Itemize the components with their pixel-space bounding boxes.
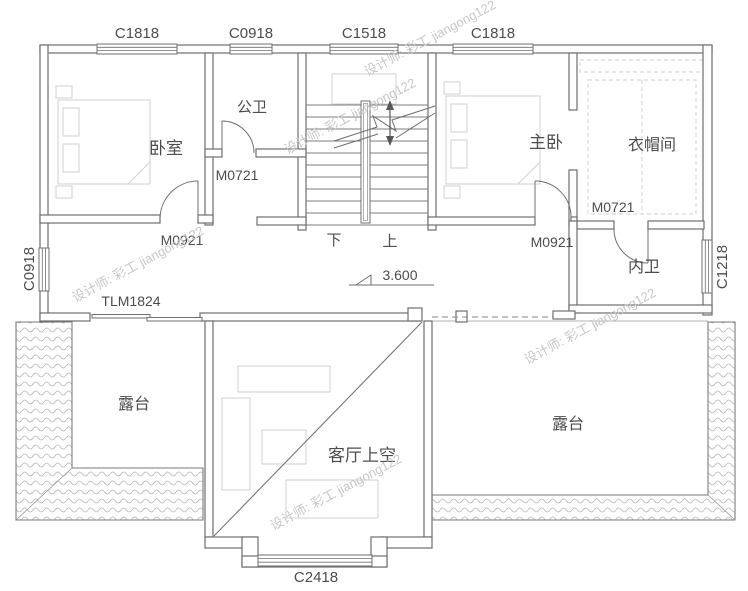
wall-segment xyxy=(569,53,577,110)
window-c0918-top xyxy=(230,44,272,54)
floor-plan-page: C1818 C0918 C1518 C1818 C0918 C1218 C241… xyxy=(0,0,748,591)
wall-segment xyxy=(380,537,432,548)
window-label-c2418: C2418 xyxy=(294,569,338,586)
door-label-tlm1824: TLM1824 xyxy=(101,293,160,309)
room-label-master-bedroom: 主卧 xyxy=(529,133,563,152)
room-label-bedroom: 卧室 xyxy=(149,139,183,158)
stair-railing xyxy=(361,101,370,223)
window-label-c0918-top: C0918 xyxy=(229,25,273,42)
window-c1818-top-right xyxy=(453,44,533,54)
wall-pier xyxy=(408,308,422,321)
room-label-ensuite-bath: 内卫 xyxy=(628,258,660,276)
floor-plan-drawing: C1818 C0918 C1518 C1818 C0918 C1218 C241… xyxy=(0,0,748,591)
window-label-c1518: C1518 xyxy=(342,25,386,42)
room-label-terrace-right: 露台 xyxy=(552,415,584,433)
window-label-c1218-right: C1218 xyxy=(714,245,731,289)
room-label-terrace-left: 露台 xyxy=(118,395,150,413)
door-ensuite-m0721 xyxy=(614,229,648,263)
wall-segment xyxy=(205,321,213,537)
terrace-roof-hatch-left xyxy=(16,322,203,520)
wall-segment xyxy=(198,215,213,223)
door-label-m0721-right: M0721 xyxy=(592,199,635,215)
stair-down-label: 下 xyxy=(326,232,341,249)
wall-segment xyxy=(428,53,436,230)
wall-segment xyxy=(553,311,575,319)
wall-segment xyxy=(205,53,213,225)
window-c0918-left xyxy=(39,248,49,291)
wall-segment xyxy=(40,313,90,321)
watermark-text: 设计师: 彩工 jiangong122 xyxy=(522,285,659,367)
wall-segment xyxy=(200,313,420,321)
room-label-cloakroom: 衣帽间 xyxy=(628,136,676,154)
wall-segment xyxy=(648,221,704,229)
door-label-m0921-right: M0921 xyxy=(531,234,574,250)
level-flag-icon xyxy=(356,275,371,285)
wall-segment xyxy=(424,321,432,537)
stair-up-label: 上 xyxy=(382,233,397,250)
window-c1218-right xyxy=(702,240,712,293)
wall-segment xyxy=(40,215,160,223)
door-publicbath-m0721 xyxy=(222,121,254,153)
wall-segment xyxy=(257,217,306,225)
wall-segment xyxy=(205,149,222,157)
wall-segment xyxy=(428,217,535,225)
window-c1818-top-left xyxy=(97,44,177,54)
level-value-label: 3.600 xyxy=(382,267,417,283)
window-c2418-bottom xyxy=(258,555,372,566)
window-label-c1818-2: C1818 xyxy=(471,25,515,42)
window-label-c1818-1: C1818 xyxy=(115,25,159,42)
window-label-c0918-left: C0918 xyxy=(21,247,38,291)
room-label-public-bath: 公卫 xyxy=(237,99,267,116)
door-master-m0921 xyxy=(535,181,571,217)
staircase xyxy=(306,100,435,225)
sliding-door-tlm1824 xyxy=(92,315,202,322)
door-label-m0721-left: M0721 xyxy=(216,167,259,183)
wall-segment xyxy=(577,221,614,229)
door-bedroom-m0921 xyxy=(160,181,198,219)
